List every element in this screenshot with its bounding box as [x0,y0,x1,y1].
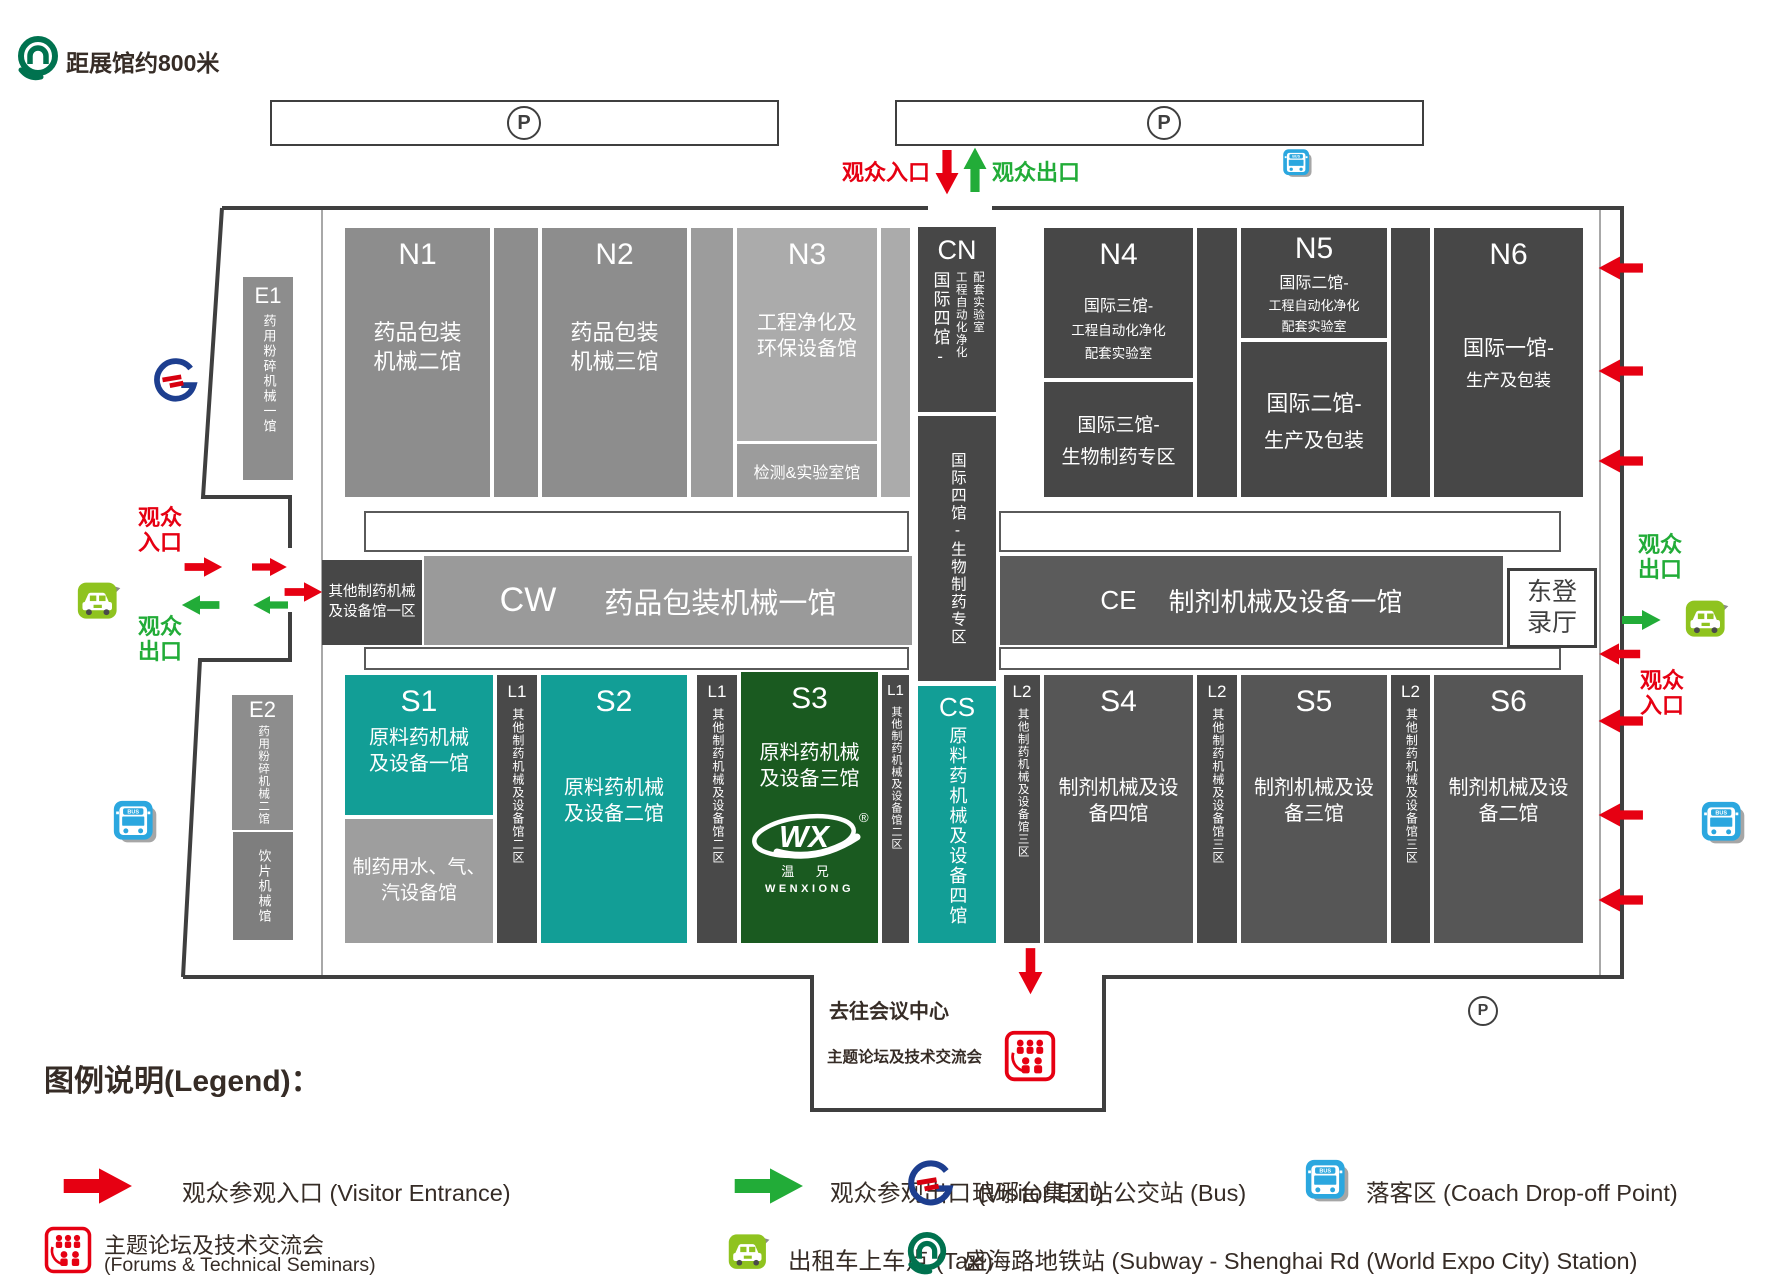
visitor-exit-arrow-icon [962,144,988,194]
hall-other-zone1: 其他制药机械及设备馆一区 [322,560,422,645]
legend-taxi-icon [727,1230,773,1276]
hall-name: 其他制药机械及设备馆三区 [1015,708,1028,858]
hall-id: CN [938,237,977,264]
legend-subway-icon [904,1230,950,1276]
hall-l2: L2 其他制药机械及设备馆三区 [1004,675,1040,943]
hall-name: 国际三馆- [1084,292,1153,316]
east-registration-hall: 东登录厅 [1507,568,1597,648]
legend-bus-stop-glogo-icon [904,1158,956,1210]
visitor-entrance-arrow-icon [1596,887,1644,913]
hall-id: E2 [249,699,276,721]
hall-name: 其他制药机械及设备馆二区 [710,708,724,864]
hall-id: N4 [1099,240,1137,270]
hall-n6-annex [1391,228,1430,497]
hall-name: 制剂机械及设备三馆 [1254,775,1374,828]
north-entrance-label: 观众入口 [842,160,930,185]
north-exit-label: 观众出口 [992,160,1080,185]
legend-entrance-arrow-icon [56,1166,142,1206]
hall-name: 其他制药机械及设备馆三区 [1404,708,1418,864]
wx-mark: WX [779,819,831,854]
hall-id: S1 [401,687,438,717]
hall-cw: CW 药品包装机械一馆 [424,556,912,645]
subway-logo-icon [14,34,62,84]
legend-exit-arrow-icon [727,1166,813,1206]
hall-name: 生产及包装 [1264,424,1364,453]
hall-n4: N4 国际三馆- 工程自动化净化 配套实验室 [1044,228,1193,378]
hall-n2: N2 药品包装机械三馆 [542,228,687,497]
hall-id: L1 [708,683,727,700]
hall-s5: S5 制剂机械及设备三馆 [1241,675,1387,943]
hall-id: E1 [255,285,282,307]
hall-name: 药用粉碎机械一馆 [261,314,276,434]
hall-name: 药品包装机械一馆 [604,580,836,622]
hall-n5: N5 国际二馆- 工程自动化净化 配套实验室 [1241,228,1387,338]
coach-dropoff-icon [1282,148,1314,180]
hall-id: N6 [1489,240,1527,270]
visitor-entrance-arrow-icon [252,556,288,578]
taxi-icon [1684,596,1732,644]
wx-chinese: 温 兄 [781,861,838,880]
hall-id: L1 [887,683,904,698]
visitor-exit-arrow-icon [252,594,288,616]
wx-registered-mark: ® [859,810,869,825]
hall-name: 制剂机械及设备四馆 [1059,775,1179,828]
hall-name: 配套实验室 [1281,316,1346,335]
coach-dropoff-icon [1700,800,1748,848]
hall-name: 检测&实验室馆 [754,459,861,483]
hall-name: 国际二馆- [1279,269,1348,293]
hall-id: L2 [1013,683,1032,700]
east-exit-label: 观众出口 [1638,532,1686,583]
conference-direction-label: 去往会议中心 [829,995,949,1024]
legend-taxi-label: 出租车上车点 (Taxi) [788,1242,993,1276]
hall-name: 制剂机械及设备一馆 [1169,582,1403,619]
parking-icon: P [1468,996,1498,1026]
hall-subname: 配套实验室 [971,271,984,334]
conference-seminar-label: 主题论坛及技术交流会 [827,1045,982,1067]
hall-cs: CS 原料药机械及设备四馆 [918,686,996,943]
west-exit-label: 观众出口 [138,614,188,665]
hall-id: N2 [595,240,633,270]
hall-name: 工程自动化净化 [1268,295,1359,314]
hall-s2: S2 原料药机械及设备二馆 [541,675,687,943]
hall-name: 生物制药专区 [1061,442,1175,469]
hall-name: 工程净化及环保设备馆 [751,310,863,363]
hall-name: 制剂机械及设备二馆 [1449,775,1569,828]
hall-name: 国际一馆- [1463,332,1554,362]
visitor-entrance-arrow-icon [1596,642,1642,666]
legend-coach-label: 落客区 (Coach Drop-off Point) [1366,1174,1678,1208]
bus-stop-glogo-icon [150,356,200,406]
hall-e2: E2 药用粉碎机械二馆 [232,695,293,830]
hall-name: 原料药机械及设备二馆 [556,775,672,828]
hall-name: 制药用水、气、汽设备馆 [347,855,491,906]
visitor-entrance-arrow-icon [1596,802,1644,828]
hall-name: 东登录厅 [1524,577,1580,640]
visitor-entrance-arrow-icon [1596,255,1644,281]
hall-s6: S6 制剂机械及设备二馆 [1434,675,1583,943]
hall-n4-bio: 国际三馆- 生物制药专区 [1044,382,1193,497]
parking-icon: P [1147,106,1181,140]
hall-id: L2 [1208,683,1227,700]
hall-name: 其他制药机械及设备馆三区 [1210,708,1224,864]
legend-seminar-icon [44,1226,92,1274]
hall-n3-annex-right [881,228,910,497]
hall-n1: N1 药品包装机械二馆 [345,228,490,497]
hall-id: CE [1100,585,1136,616]
legend-coach-dropoff-icon [1304,1158,1352,1206]
hall-n5-production: 国际二馆- 生产及包装 [1241,342,1387,497]
hall-subname: 工程自动化净化 [954,271,967,359]
hall-name: 国际四馆- [930,271,950,368]
visitor-entrance-arrow-icon [934,148,960,198]
wx-english: WENXIONG [765,883,854,895]
visitor-entrance-arrow-icon [1596,358,1644,384]
hall-name: 其他制药机械及设备馆二区 [889,706,902,850]
west-entrance-label: 观众入口 [138,505,188,556]
hall-id: S6 [1490,687,1527,717]
hall-name: 原料药机械及设备三馆 [754,740,866,793]
hall-n1-annex [494,228,538,497]
hall-n6: N6 国际一馆- 生产及包装 [1434,228,1583,497]
hall-n4-annex [1197,228,1237,497]
hall-name: 饮片机械馆 [256,849,271,924]
hall-cn-bio: 国际四馆-生物制药专区 [918,416,996,681]
east-entrance-label: 观众入口 [1640,668,1688,719]
subway-distance-note: 距展馆约800米 [66,44,219,78]
hall-id: CW [500,581,557,620]
visitor-exit-arrow-icon [176,594,224,616]
hall-s1-water: 制药用水、气、汽设备馆 [345,819,493,943]
hall-id: S5 [1296,687,1333,717]
hall-name: 药用粉碎机械二馆 [256,725,269,825]
wenxiong-logo: WX ® 温 兄 WENXIONG [747,807,873,895]
hall-name: 药品包装机械二馆 [370,318,466,376]
hall-s4: S4 制剂机械及设备四馆 [1044,675,1193,943]
hall-e1: E1 药用粉碎机械一馆 [243,277,293,480]
hall-n3-annex-left [691,228,733,497]
hall-name: 其他制药机械及设备馆一区 [326,583,418,622]
hall-decoction-machinery: 饮片机械馆 [233,832,293,940]
hall-name: 工程自动化净化 [1071,319,1166,339]
hall-id: N3 [788,240,826,270]
hall-l2: L2 其他制药机械及设备馆三区 [1391,675,1430,943]
hall-l1: L1 其他制药机械及设备馆二区 [697,675,737,943]
hall-id: S3 [791,684,828,714]
to-conference-arrow-icon [1017,941,1044,1003]
visitor-entrance-arrow-icon [284,581,324,603]
legend-bus-label: 琅琊台集团站公交站 (Bus) [972,1174,1246,1208]
hall-name: 配套实验室 [1085,342,1153,362]
hall-l2: L2 其他制药机械及设备馆三区 [1197,675,1237,943]
hall-id: L1 [508,683,527,700]
hall-id: L2 [1401,683,1420,700]
legend-title: 图例说明(Legend)： [44,1056,321,1100]
hall-id: N5 [1295,234,1333,264]
hall-id: CS [939,694,975,720]
visitor-entrance-arrow-icon [1596,448,1644,474]
hall-s1: S1 原料药机械及设备一馆 [345,675,493,815]
hall-id: N1 [398,240,436,270]
hall-n3-lab: 检测&实验室馆 [737,441,877,497]
legend-entrance-label: 观众参观入口 (Visitor Entrance) [182,1174,511,1208]
legend-subway-label: 盛海路地铁站 (Subway - Shenghai Rd (World Expo… [964,1242,1637,1276]
hall-name: 国际二馆- [1266,386,1361,418]
legend-seminar-label-en: (Forums & Technical Seminars) [104,1254,376,1276]
hall-name: 原料药机械及设备一馆 [361,725,477,778]
visitor-entrance-arrow-icon [1596,708,1644,734]
hall-s3: S3 原料药机械及设备三馆 WX ® 温 兄 WENXIONG [741,672,878,943]
taxi-icon [76,578,124,626]
coach-dropoff-icon [112,799,160,847]
hall-name: 国际四馆-生物制药专区 [948,452,966,646]
hall-name: 国际三馆- [1077,410,1159,437]
hall-l1: L1 其他制药机械及设备馆二区 [497,675,537,943]
hall-name: 生产及包装 [1466,366,1551,391]
visitor-exit-arrow-icon [1622,608,1662,632]
parking-icon: P [507,106,541,140]
hall-id: S2 [596,687,633,717]
hall-name: 原料药机械及设备四馆 [947,726,968,926]
hall-name: 药品包装机械三馆 [567,318,663,376]
hall-name: 其他制药机械及设备馆二区 [510,708,524,864]
visitor-entrance-arrow-icon [184,556,224,578]
hall-ce: CE 制剂机械及设备一馆 [1000,556,1503,645]
hall-id: S4 [1100,687,1137,717]
hall-cn: CN 国际四馆- 工程自动化净化 配套实验室 [918,227,996,412]
hall-l1: L1 其他制药机械及设备馆二区 [882,675,909,943]
exhibition-floor-plan: BUS [0,0,1770,1276]
seminar-icon [1004,1030,1056,1082]
